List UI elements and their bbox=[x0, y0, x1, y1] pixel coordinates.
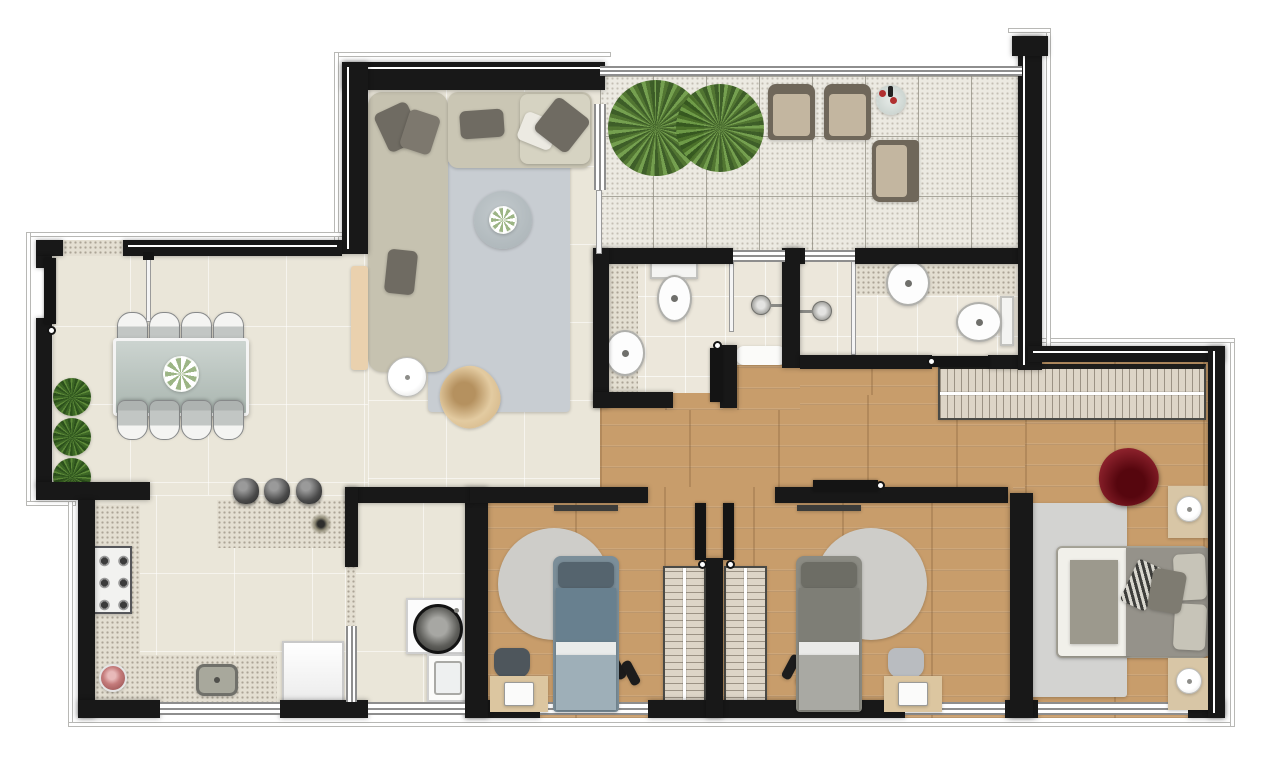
dining-centerpiece bbox=[163, 356, 199, 392]
master-door-leaf bbox=[813, 480, 878, 491]
laundry-window bbox=[368, 702, 465, 715]
wall-dining-bottom-left bbox=[36, 482, 150, 500]
wall-bath-divider bbox=[782, 248, 800, 368]
wall-bath2-bottom-left bbox=[800, 355, 932, 369]
bathroom1-door-hinge bbox=[713, 341, 722, 350]
balcony-sliding-door bbox=[594, 104, 606, 190]
toilet-cistern bbox=[1000, 296, 1014, 346]
kitchen-sink bbox=[196, 664, 238, 696]
master-door-hinge bbox=[876, 481, 885, 490]
shower-head bbox=[751, 295, 771, 315]
desk-chair bbox=[888, 648, 924, 678]
wall-trim bbox=[1023, 41, 1025, 365]
floor-plan bbox=[0, 0, 1280, 759]
wall-dining-left bbox=[36, 318, 52, 488]
trim bbox=[68, 501, 73, 724]
entry-corridor-floor bbox=[63, 240, 123, 256]
dining-chair bbox=[117, 400, 148, 440]
wall-bath-top-3 bbox=[855, 248, 1018, 264]
wall-bath1-bottom bbox=[593, 392, 673, 408]
bedroom2-door-hinge bbox=[726, 560, 735, 569]
drink-glass bbox=[890, 97, 897, 104]
wall-master-top bbox=[1028, 346, 1225, 362]
wall-trim bbox=[347, 67, 600, 69]
potted-plant bbox=[53, 378, 91, 416]
bar-stool bbox=[233, 478, 259, 504]
sofa-pillow bbox=[459, 108, 505, 139]
bathroom2-door-leaf bbox=[932, 356, 989, 367]
balcony-armchair bbox=[872, 140, 919, 202]
fruit-bowl bbox=[99, 664, 127, 692]
trim bbox=[68, 722, 1234, 727]
trim bbox=[1008, 28, 1051, 33]
wall-bedroom2-top bbox=[775, 487, 1008, 503]
bathroom2-vanity bbox=[856, 260, 1015, 295]
laptop bbox=[504, 682, 534, 706]
wall-master-left bbox=[1010, 493, 1033, 718]
coffee-table-flowers bbox=[489, 206, 517, 234]
wall-trim bbox=[347, 67, 349, 249]
shower-head bbox=[812, 301, 832, 321]
drink-glass bbox=[879, 90, 886, 97]
wall-balcony-right bbox=[1018, 36, 1042, 370]
bedroom1-door-hinge bbox=[698, 560, 707, 569]
wardrobe bbox=[663, 566, 706, 714]
entry-frame-cap bbox=[143, 252, 154, 260]
bed-sheet-fold bbox=[799, 642, 859, 655]
trim bbox=[1046, 32, 1051, 372]
bath2-window bbox=[805, 250, 855, 262]
wall-trim bbox=[1033, 351, 1220, 353]
trim bbox=[334, 52, 611, 57]
balcony-chair bbox=[768, 84, 815, 140]
wall-bath1-left bbox=[593, 248, 609, 408]
drink-bottle bbox=[888, 86, 893, 97]
trim bbox=[1028, 338, 1235, 343]
bath1-window bbox=[733, 250, 785, 262]
bathroom1-sink bbox=[605, 330, 645, 376]
fridge bbox=[282, 641, 344, 703]
wall-bath-top-1 bbox=[593, 248, 733, 264]
bed-pillow bbox=[801, 562, 857, 588]
wall-shelf bbox=[554, 505, 618, 511]
washing-machine bbox=[406, 598, 464, 654]
balcony-railing bbox=[600, 66, 1022, 76]
wall-kitchen-left bbox=[78, 500, 95, 718]
wall-service-stub bbox=[345, 487, 358, 567]
master-window bbox=[1038, 702, 1188, 715]
wall-living-left bbox=[342, 62, 368, 254]
laundry-tank bbox=[427, 654, 469, 702]
wall-balcony-cap bbox=[1012, 36, 1048, 56]
dining-chair bbox=[213, 400, 244, 440]
wall-bottom-1 bbox=[78, 700, 160, 718]
bathroom2-sink bbox=[886, 260, 930, 306]
wall-master-right bbox=[1208, 346, 1225, 718]
throw-pillow bbox=[1147, 567, 1188, 614]
wall-dining-top bbox=[123, 240, 342, 256]
bedroom1-door-leaf bbox=[695, 503, 706, 560]
master-wardrobe bbox=[938, 364, 1206, 420]
wardrobe bbox=[724, 566, 767, 714]
bed-sheet-fold bbox=[556, 642, 616, 655]
bedroom2-door-leaf bbox=[723, 503, 734, 560]
palm-plant bbox=[676, 84, 764, 172]
trim bbox=[26, 232, 343, 237]
table-lamp bbox=[1176, 668, 1202, 694]
balcony-glass-panel bbox=[596, 190, 602, 254]
console-table bbox=[351, 266, 368, 370]
wall-bedroom1-top bbox=[470, 487, 648, 503]
wall-bedroom1-left bbox=[465, 487, 488, 718]
shower-rear-wood bbox=[737, 365, 800, 410]
kitchen-window bbox=[160, 702, 280, 715]
bed-blanket-foot bbox=[799, 655, 859, 710]
bar-stool bbox=[264, 478, 290, 504]
toilet-bowl bbox=[657, 275, 692, 322]
floor-lamp bbox=[387, 357, 427, 397]
wall-trim bbox=[1213, 351, 1215, 713]
bar-stool bbox=[296, 478, 322, 504]
wall-bottom-2 bbox=[280, 700, 368, 718]
master-bed-sheet-inner bbox=[1070, 560, 1118, 644]
laptop bbox=[898, 682, 928, 706]
trim bbox=[1230, 340, 1235, 727]
bed-blanket-foot bbox=[556, 655, 616, 710]
wall-closet-divider bbox=[706, 558, 723, 718]
wall-shower-corner bbox=[720, 345, 737, 408]
wall-shelf bbox=[797, 505, 861, 511]
desk-chair bbox=[494, 648, 530, 678]
bed-pillow bbox=[558, 562, 614, 588]
wall-service-top bbox=[345, 487, 470, 503]
shower-bench bbox=[736, 346, 786, 365]
laundry-sliding-door bbox=[346, 626, 357, 702]
entry-door-hinge bbox=[47, 326, 56, 335]
potted-plant bbox=[53, 418, 91, 456]
entry-door-leaf bbox=[44, 258, 56, 324]
sofa-pillow bbox=[384, 249, 418, 296]
bathroom1-door-leaf bbox=[710, 348, 722, 402]
trim bbox=[334, 52, 339, 254]
kitchen-laundry-divider bbox=[346, 564, 356, 628]
balcony-chair bbox=[824, 84, 871, 140]
trim bbox=[26, 232, 31, 506]
wall-bath2-bottom-right bbox=[988, 355, 1018, 369]
wall-bottom-4 bbox=[648, 700, 905, 718]
bed-blanket bbox=[556, 588, 616, 642]
bathroom2-door-hinge bbox=[927, 357, 936, 366]
table-lamp bbox=[1176, 496, 1202, 522]
shower-glass bbox=[851, 260, 856, 355]
island-decor bbox=[310, 513, 332, 535]
wall-trim bbox=[128, 245, 337, 247]
wall-living-top bbox=[342, 62, 605, 90]
dining-chair bbox=[181, 400, 212, 440]
shower-glass bbox=[729, 260, 734, 332]
stove bbox=[92, 546, 132, 614]
wall-entry-stub bbox=[36, 240, 63, 256]
toilet-bowl bbox=[956, 302, 1002, 342]
entry-door-frame bbox=[146, 258, 151, 322]
dining-chair bbox=[149, 400, 180, 440]
bed-blanket bbox=[799, 588, 859, 642]
